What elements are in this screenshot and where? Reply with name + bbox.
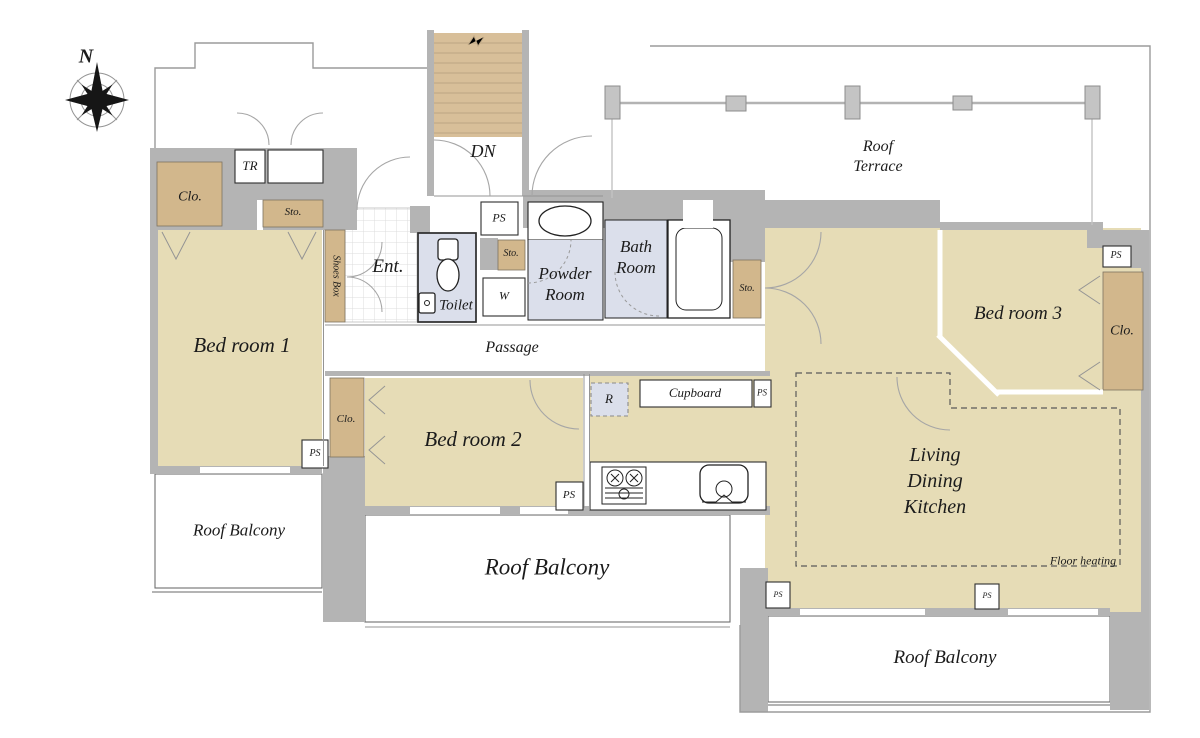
bath-line1: Bath: [616, 236, 656, 257]
stairs-dn-label: DN: [470, 140, 495, 163]
ps-kitchen-label: PS: [757, 387, 767, 398]
tr-label: TR: [242, 158, 257, 174]
staircase: [427, 30, 603, 196]
ldk-line3: Kitchen: [904, 494, 966, 520]
ldk-line1: Living: [904, 442, 966, 468]
bathtub-icon: [668, 220, 730, 318]
toilet-label: Toilet: [439, 297, 473, 316]
shoes-box-label: Shoes Box: [329, 255, 342, 296]
cupboard-label: Cupboard: [669, 385, 721, 401]
refrigerator-label: R: [605, 391, 613, 407]
sto-bedroom1-label: Sto.: [285, 206, 302, 220]
ps-ldk-right-label: PS: [983, 591, 992, 601]
vanity-sink-icon: [539, 206, 591, 236]
roof-terrace-label: Roof Terrace: [853, 137, 902, 177]
roof-balcony-center-label: Roof Balcony: [485, 554, 610, 583]
ps-ldk-left-label: PS: [774, 590, 783, 600]
powder-line1: Powder: [539, 263, 592, 284]
floor-heating-label: Floor heating: [1050, 554, 1116, 569]
roof-balcony-left-label: Roof Balcony: [193, 519, 285, 540]
powder-line2: Room: [539, 284, 592, 305]
clo-bedroom1-label: Clo.: [178, 188, 202, 206]
floorplan-graphics: [0, 0, 1200, 738]
floor-plan: N DN Roof Terrace TR Clo. Sto. Shoes Box…: [0, 0, 1200, 738]
powder-room-label: Powder Room: [539, 263, 592, 306]
bath-line2: Room: [616, 257, 656, 278]
ps-bedroom1-label: PS: [309, 448, 320, 461]
compass-icon: [65, 62, 129, 132]
bedroom3-label: Bed room 3: [974, 302, 1062, 326]
washer-label: W: [499, 289, 509, 304]
roof-terrace-line1: Roof: [853, 137, 902, 157]
ps-bedroom3-label: PS: [1110, 250, 1121, 263]
ldk-line2: Dining: [904, 468, 966, 494]
sto-powder-label: Sto.: [503, 248, 518, 261]
clo-bedroom3-label: Clo.: [1110, 322, 1134, 340]
entrance-label: Ent.: [372, 255, 403, 279]
ps-bedroom2-label: PS: [563, 489, 575, 503]
compass-n-label: N: [79, 45, 93, 70]
roof-balcony-bottom-label: Roof Balcony: [894, 646, 997, 670]
bedroom1-label: Bed room 1: [193, 332, 290, 358]
bedroom2-label: Bed room 2: [424, 426, 521, 452]
passage-label: Passage: [485, 338, 538, 358]
bath-room-label: Bath Room: [616, 236, 656, 279]
clo-bedroom2-label: Clo.: [337, 413, 356, 427]
roof-terrace-line2: Terrace: [853, 157, 902, 177]
ldk-label: Living Dining Kitchen: [904, 442, 966, 520]
sink-icon: [700, 465, 748, 503]
sto-ldk-label: Sto.: [739, 283, 754, 296]
ps-hall-label: PS: [492, 211, 505, 226]
